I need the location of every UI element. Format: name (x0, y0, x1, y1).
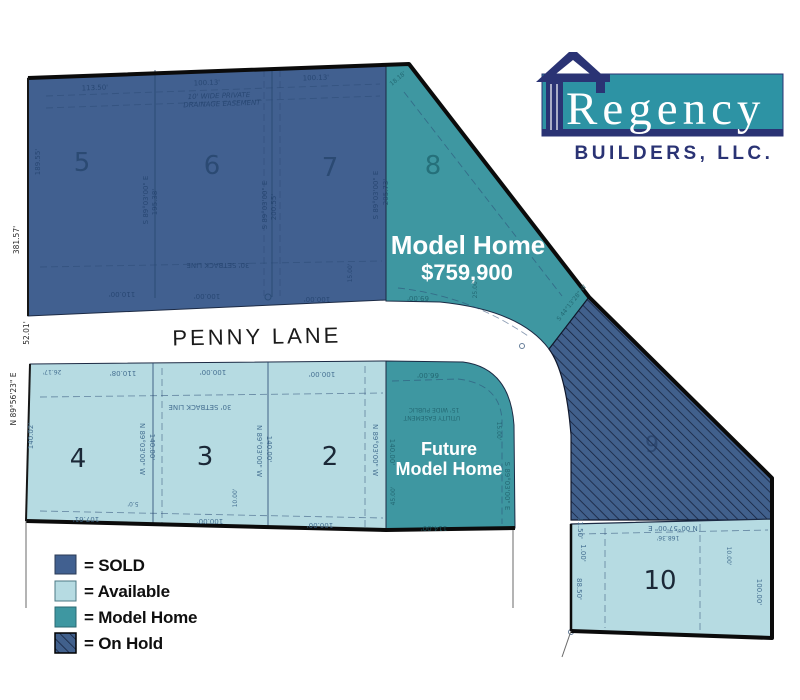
survey-label: 100.00' (309, 370, 335, 378)
model-home-callout: Model Home (391, 230, 546, 260)
legend-label-sold: = SOLD (84, 556, 145, 575)
survey-label: 69.00' (407, 294, 429, 302)
survey-label: 100.00' (755, 579, 763, 605)
survey-label: 100.00' (194, 292, 220, 300)
legend-swatch-sold (55, 555, 76, 574)
lot-10-number: 10 (643, 566, 676, 596)
survey-label: N 00°57'00" E (648, 524, 697, 532)
survey-label: 100.13' (194, 79, 221, 88)
logo-name: Regency (566, 83, 765, 135)
survey-label: S 89°03'00" E (372, 171, 380, 220)
survey-label: 205.73' (382, 179, 390, 205)
house-eave-icon (544, 74, 610, 82)
survey-label: 88.50' (575, 578, 583, 600)
survey-label: 114.00' (421, 524, 447, 532)
survey-label: 11.50' (576, 517, 584, 539)
lot-8-number: 8 (425, 151, 442, 181)
lot-6-number: 6 (204, 151, 221, 181)
survey-label: 113.50' (82, 84, 109, 93)
survey-label: 26.17' (42, 368, 61, 375)
future-model-home-line2: Model Home (395, 459, 502, 479)
lot-2-number: 2 (322, 442, 339, 472)
survey-label: 15' WIDE PUBLIC (409, 406, 460, 413)
future-model-home-line1: Future (421, 439, 477, 459)
survey-label: 140.00' (148, 434, 156, 460)
legend-swatch-model-home (55, 607, 76, 627)
lot-7-number: 7 (322, 153, 339, 183)
survey-label: 189.55' (34, 149, 42, 175)
legend-label-on-hold: = On Hold (84, 634, 163, 653)
legend-label-available: = Available (84, 582, 170, 601)
survey-label: 30' SETBACK LINE (169, 403, 232, 411)
survey-label: 140.00' (265, 436, 273, 462)
survey-label: 30' SETBACK LINE (187, 261, 250, 269)
logo-subtitle: BUILDERS, LLC. (575, 143, 774, 164)
survey-label: 45.00' (390, 486, 397, 505)
regency-builders-logo: Regency BUILDERS, LLC. (536, 52, 783, 164)
survey-label: 110.00' (109, 290, 135, 298)
plat-map-canvas: 5 6 7 8 9 4 3 2 10 PENNY LANE Model Home… (0, 0, 800, 700)
survey-label: 100.00' (197, 517, 223, 525)
survey-label: N 89°03'00" W (138, 423, 146, 475)
survey-label: 140.02' (27, 423, 35, 449)
survey-label: N 89°03'00" W (371, 424, 379, 476)
street-name-label: PENNY LANE (172, 323, 341, 351)
house-column-icon (546, 82, 563, 132)
survey-label: S 89°03'00" E (261, 181, 269, 230)
survey-label: 25.00' (472, 279, 479, 298)
survey-label: 15.00' (495, 422, 502, 441)
survey-label: S 89°03'00" E (503, 462, 511, 511)
survey-label: 10.00' (232, 488, 239, 507)
legend-swatch-available (55, 581, 76, 601)
legend-label-model-home: = Model Home (84, 608, 197, 627)
survey-label: 140.00' (388, 439, 396, 465)
model-home-price: $759,900 (421, 260, 513, 285)
survey-label: 381.57' (12, 226, 21, 254)
legend: = SOLD = Available = Model Home = On Hol… (55, 555, 197, 653)
lot-9-number: 9 (645, 433, 659, 458)
survey-label: 195.38' (151, 189, 159, 215)
survey-label: N 89°56'23" E (9, 372, 18, 425)
survey-label: 15.00' (347, 263, 354, 282)
survey-label: 107.61' (73, 515, 99, 523)
survey-label: 168.36' (656, 534, 679, 541)
survey-label: 5.0' (127, 500, 139, 507)
survey-label: 100.00' (307, 521, 333, 529)
survey-label: 200.55' (270, 194, 278, 220)
survey-label: UTILITY EASEMENT (403, 414, 460, 421)
lot-map-flyer: 5 6 7 8 9 4 3 2 10 PENNY LANE Model Home… (0, 0, 800, 700)
survey-label: 100.00' (304, 295, 330, 303)
survey-monument (520, 344, 525, 349)
survey-label: 100.00' (200, 368, 226, 376)
survey-label: 1.00' (579, 544, 587, 562)
legend-swatch-on-hold (55, 633, 76, 653)
lot-9-on-hold (549, 297, 772, 520)
survey-label: 66.00' (417, 371, 439, 379)
section-line (562, 631, 571, 657)
survey-label: S 89°03'00" E (142, 176, 150, 225)
lot-4-number: 4 (70, 444, 87, 474)
survey-label: 110.08' (110, 369, 136, 377)
survey-label: 10.00' (725, 547, 732, 566)
lot-5-number: 5 (74, 148, 91, 178)
survey-label: N 89°03'00" W (255, 425, 263, 477)
survey-label: 52.01' (22, 321, 31, 345)
survey-label: 100.13' (303, 74, 330, 83)
lot-3-number: 3 (197, 442, 214, 472)
